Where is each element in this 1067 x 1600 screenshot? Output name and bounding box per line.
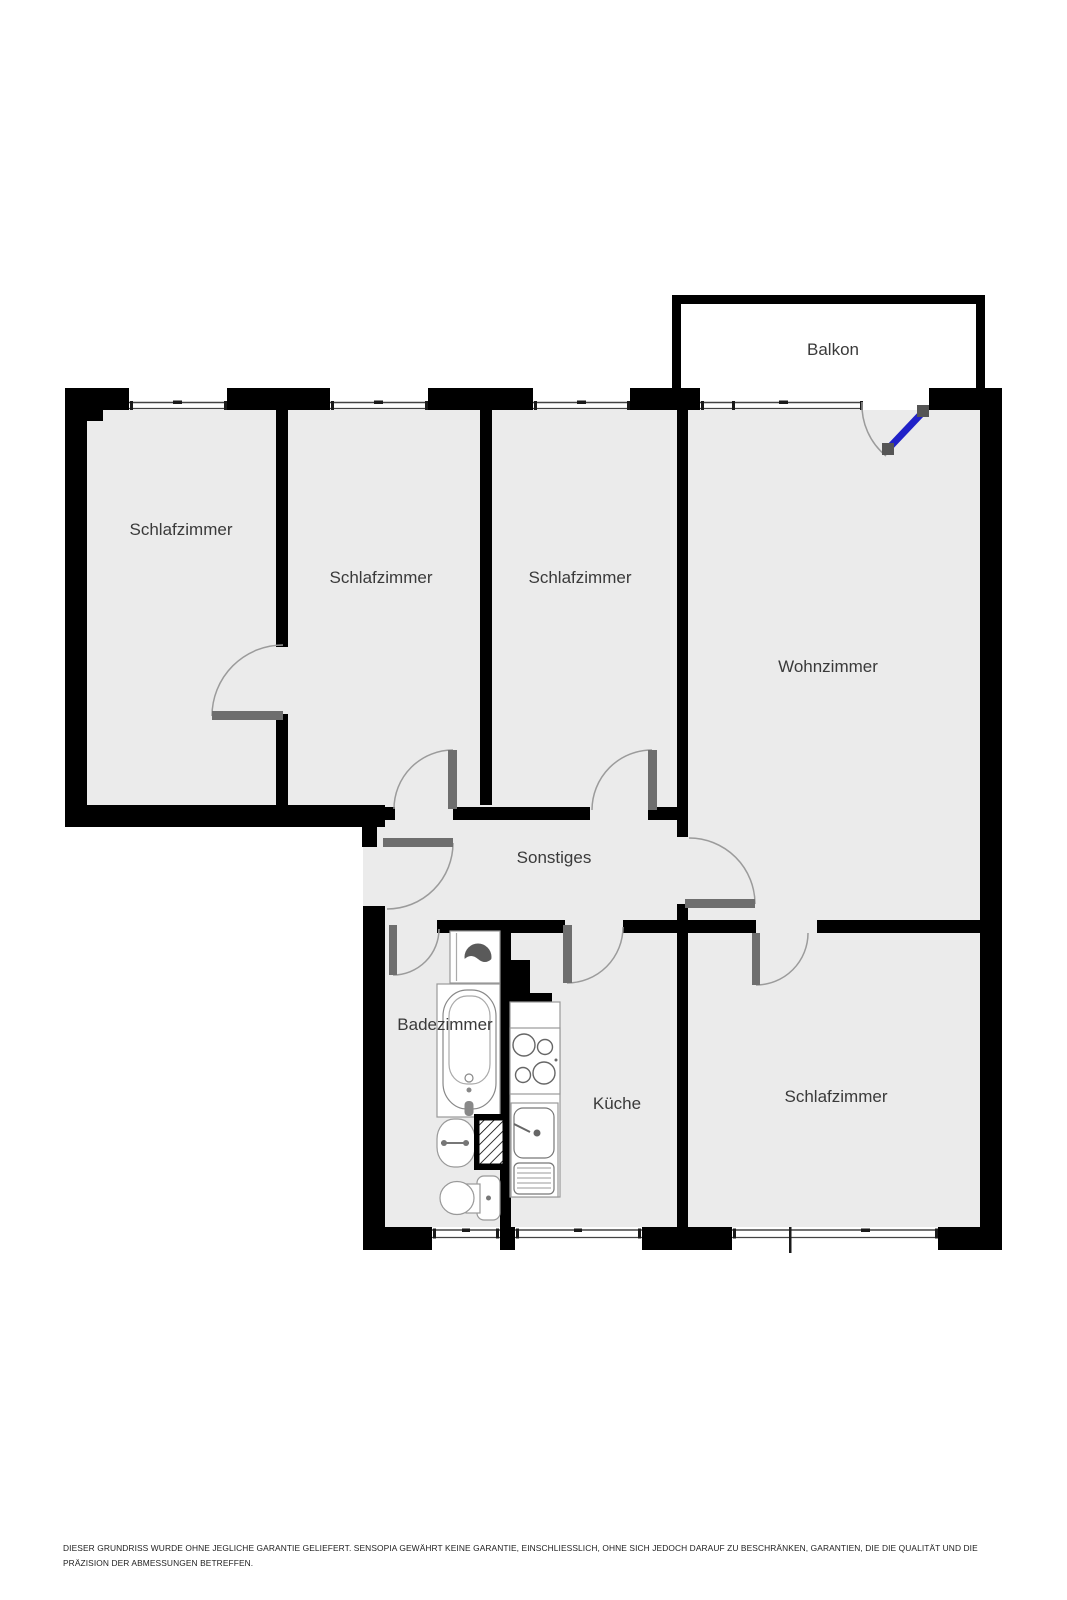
door-leaf-kitchen — [563, 925, 572, 983]
window-bedroom-2 — [330, 388, 428, 410]
bathroom-sink-icon — [437, 1119, 475, 1167]
label-kitchen: Küche — [593, 1094, 641, 1113]
label-bedroom-top-left: Schlafzimmer — [130, 520, 233, 539]
label-bathroom: Badezimmer — [397, 1015, 493, 1034]
label-bedroom-third: Schlafzimmer — [529, 568, 632, 587]
window-living-room — [700, 388, 863, 410]
balcony-wall-top — [672, 295, 985, 304]
door-leaf-bedroom1 — [212, 711, 283, 720]
door-leaf-entrance — [383, 838, 453, 847]
label-balcony: Balkon — [807, 340, 859, 359]
disclaimer-text: DIESER GRUNDRISS WURDE OHNE JEGLICHE GAR… — [63, 1541, 1011, 1571]
window-bedroom-3 — [533, 388, 630, 410]
floor-plan: Schlafzimmer Schlafzimmer Schlafzimmer W… — [0, 0, 1067, 1600]
door-leaf-bedroom2 — [448, 750, 457, 809]
label-bedroom-bottom-right: Schlafzimmer — [785, 1087, 888, 1106]
window-bathroom — [432, 1227, 500, 1250]
window-bedroom-bottom — [732, 1227, 938, 1253]
window-mullion — [789, 1227, 792, 1253]
window-kitchen — [515, 1227, 642, 1250]
kitchen-sink-icon — [511, 1103, 558, 1197]
stove-icon — [510, 1028, 560, 1094]
label-bedroom-second: Schlafzimmer — [330, 568, 433, 587]
door-leaf-bathroom — [389, 925, 397, 975]
shaft-icon — [474, 1114, 505, 1170]
floor-plan-page: Schlafzimmer Schlafzimmer Schlafzimmer W… — [0, 0, 1067, 1600]
label-living-room: Wohnzimmer — [778, 657, 878, 676]
window-bedroom-1 — [129, 388, 227, 410]
bathtub-icon — [437, 984, 500, 1117]
door-leaf-bedroom-bottom — [752, 933, 760, 985]
label-hallway: Sonstiges — [517, 848, 592, 867]
kitchen-fixtures — [510, 1002, 560, 1197]
door-leaf-living-room — [685, 899, 755, 908]
washing-machine-icon — [450, 931, 500, 983]
door-leaf-bedroom3 — [648, 750, 657, 810]
